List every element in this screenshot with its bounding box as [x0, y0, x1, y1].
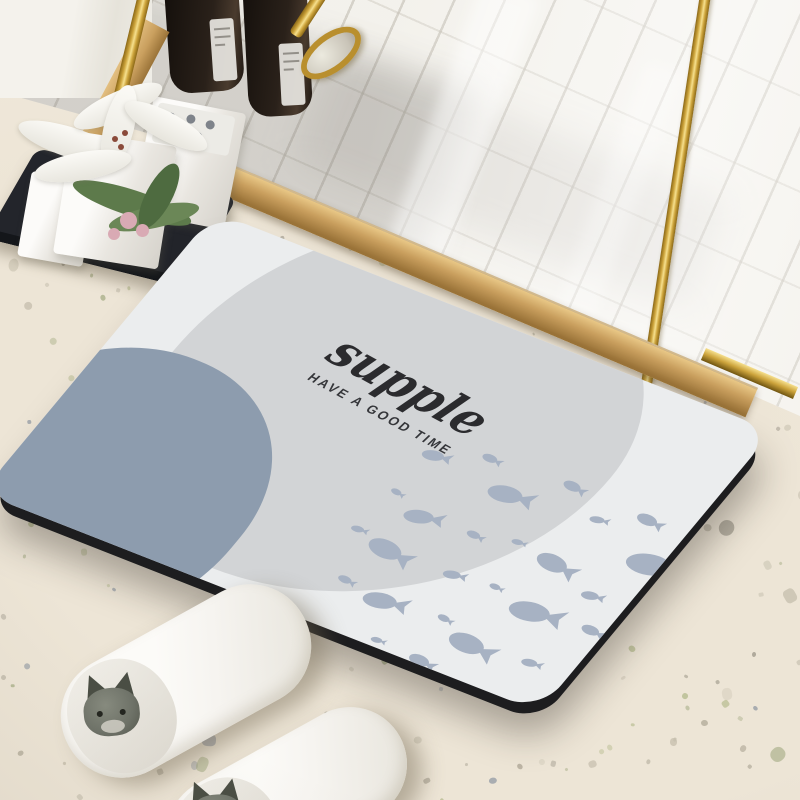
speck: [684, 674, 689, 679]
speck: [195, 755, 211, 773]
speck: [81, 548, 87, 555]
speck: [63, 761, 67, 765]
speck: [381, 657, 389, 665]
fish: [578, 588, 608, 604]
speck: [759, 592, 764, 596]
fish: [509, 537, 529, 548]
speck: [701, 720, 708, 726]
speck: [465, 762, 468, 766]
speck: [646, 759, 651, 765]
fish: [335, 572, 360, 588]
speck: [27, 520, 35, 528]
speck: [413, 736, 422, 744]
speck: [565, 768, 569, 772]
speck: [747, 765, 752, 770]
fish: [440, 568, 470, 583]
speck: [752, 652, 757, 658]
cat-face: [82, 686, 142, 739]
fish: [388, 486, 407, 500]
shower-head: [278, 0, 418, 102]
speck: [588, 760, 598, 769]
fish: [587, 514, 612, 527]
speck: [681, 693, 688, 701]
holder-hole: [205, 120, 216, 131]
speck: [48, 337, 57, 346]
speck: [11, 684, 15, 687]
speck: [716, 679, 721, 684]
fish: [399, 505, 450, 530]
fish: [529, 547, 585, 585]
speck: [631, 723, 635, 727]
speck: [704, 524, 713, 533]
bathroom-scene: supple HAVE A GOOD TIME: [0, 0, 800, 800]
speck: [22, 554, 26, 559]
fish: [479, 451, 506, 469]
speck: [22, 301, 34, 313]
fish: [518, 656, 546, 671]
fish: [357, 587, 415, 618]
speck: [75, 793, 83, 800]
speck: [627, 644, 636, 653]
speck: [597, 748, 604, 755]
speck: [18, 750, 25, 757]
speck: [23, 662, 31, 670]
fish: [360, 531, 421, 573]
speck: [549, 760, 556, 767]
flower-bud: [108, 228, 120, 240]
speck: [778, 561, 782, 566]
fish: [501, 594, 572, 633]
speck: [738, 744, 747, 753]
speck: [775, 426, 781, 432]
speck: [156, 768, 164, 776]
speck: [753, 706, 759, 712]
fish: [418, 447, 456, 467]
fish: [632, 509, 669, 533]
flower-bud: [120, 212, 137, 229]
speck: [737, 715, 744, 721]
speck: [715, 517, 737, 539]
fish: [349, 523, 372, 536]
speck: [762, 560, 772, 571]
speck: [439, 687, 444, 692]
speck: [768, 744, 788, 764]
fish: [559, 477, 591, 499]
speck: [107, 584, 111, 588]
lily-stamen: [122, 130, 128, 136]
fish: [464, 528, 489, 544]
speck: [0, 674, 7, 681]
speck: [797, 659, 800, 665]
lily-stamen: [112, 136, 118, 142]
speck: [685, 705, 691, 711]
speck: [781, 587, 798, 605]
speck: [349, 666, 355, 672]
speck: [621, 675, 627, 680]
speck: [607, 744, 614, 751]
speck: [783, 424, 792, 432]
speck: [27, 420, 32, 425]
speck: [489, 777, 498, 784]
speck: [538, 758, 546, 766]
speck: [517, 763, 525, 771]
fish: [440, 625, 504, 667]
fish: [435, 612, 457, 627]
fish: [481, 479, 542, 513]
speck: [361, 645, 368, 652]
speck: [111, 587, 116, 592]
lily-stamen: [118, 144, 124, 150]
flower-bud: [136, 224, 149, 237]
speck: [0, 613, 7, 621]
fish: [369, 635, 389, 646]
speck: [720, 698, 730, 708]
fish: [487, 581, 507, 594]
